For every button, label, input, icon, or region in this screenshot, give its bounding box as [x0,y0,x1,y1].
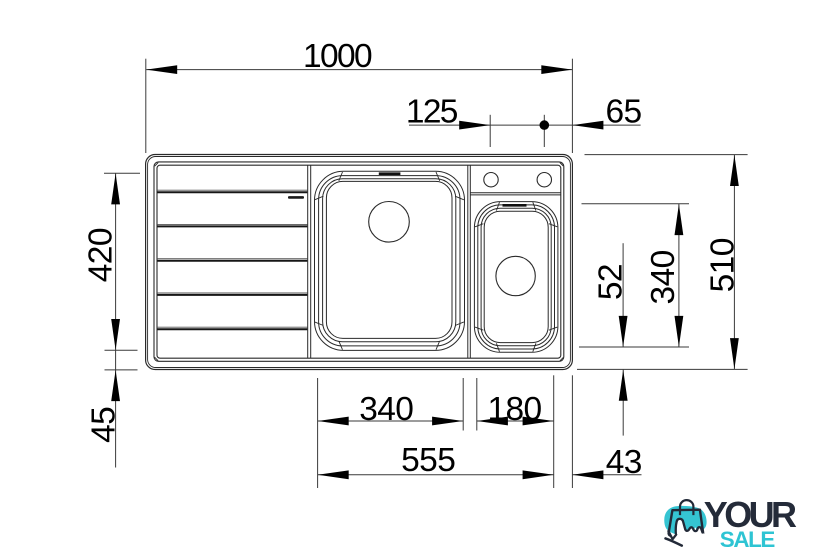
svg-text:340: 340 [645,250,682,304]
svg-text:45: 45 [85,407,122,443]
svg-text:SALE: SALE [720,527,776,552]
svg-text:180: 180 [487,391,541,428]
svg-text:1000: 1000 [303,38,372,75]
svg-text:340: 340 [359,391,413,428]
svg-text:65: 65 [605,94,641,131]
svg-text:52: 52 [592,264,629,300]
svg-text:510: 510 [704,238,741,292]
svg-text:125: 125 [406,94,458,131]
svg-text:420: 420 [82,228,119,282]
svg-text:555: 555 [401,442,455,479]
svg-text:43: 43 [606,444,642,481]
